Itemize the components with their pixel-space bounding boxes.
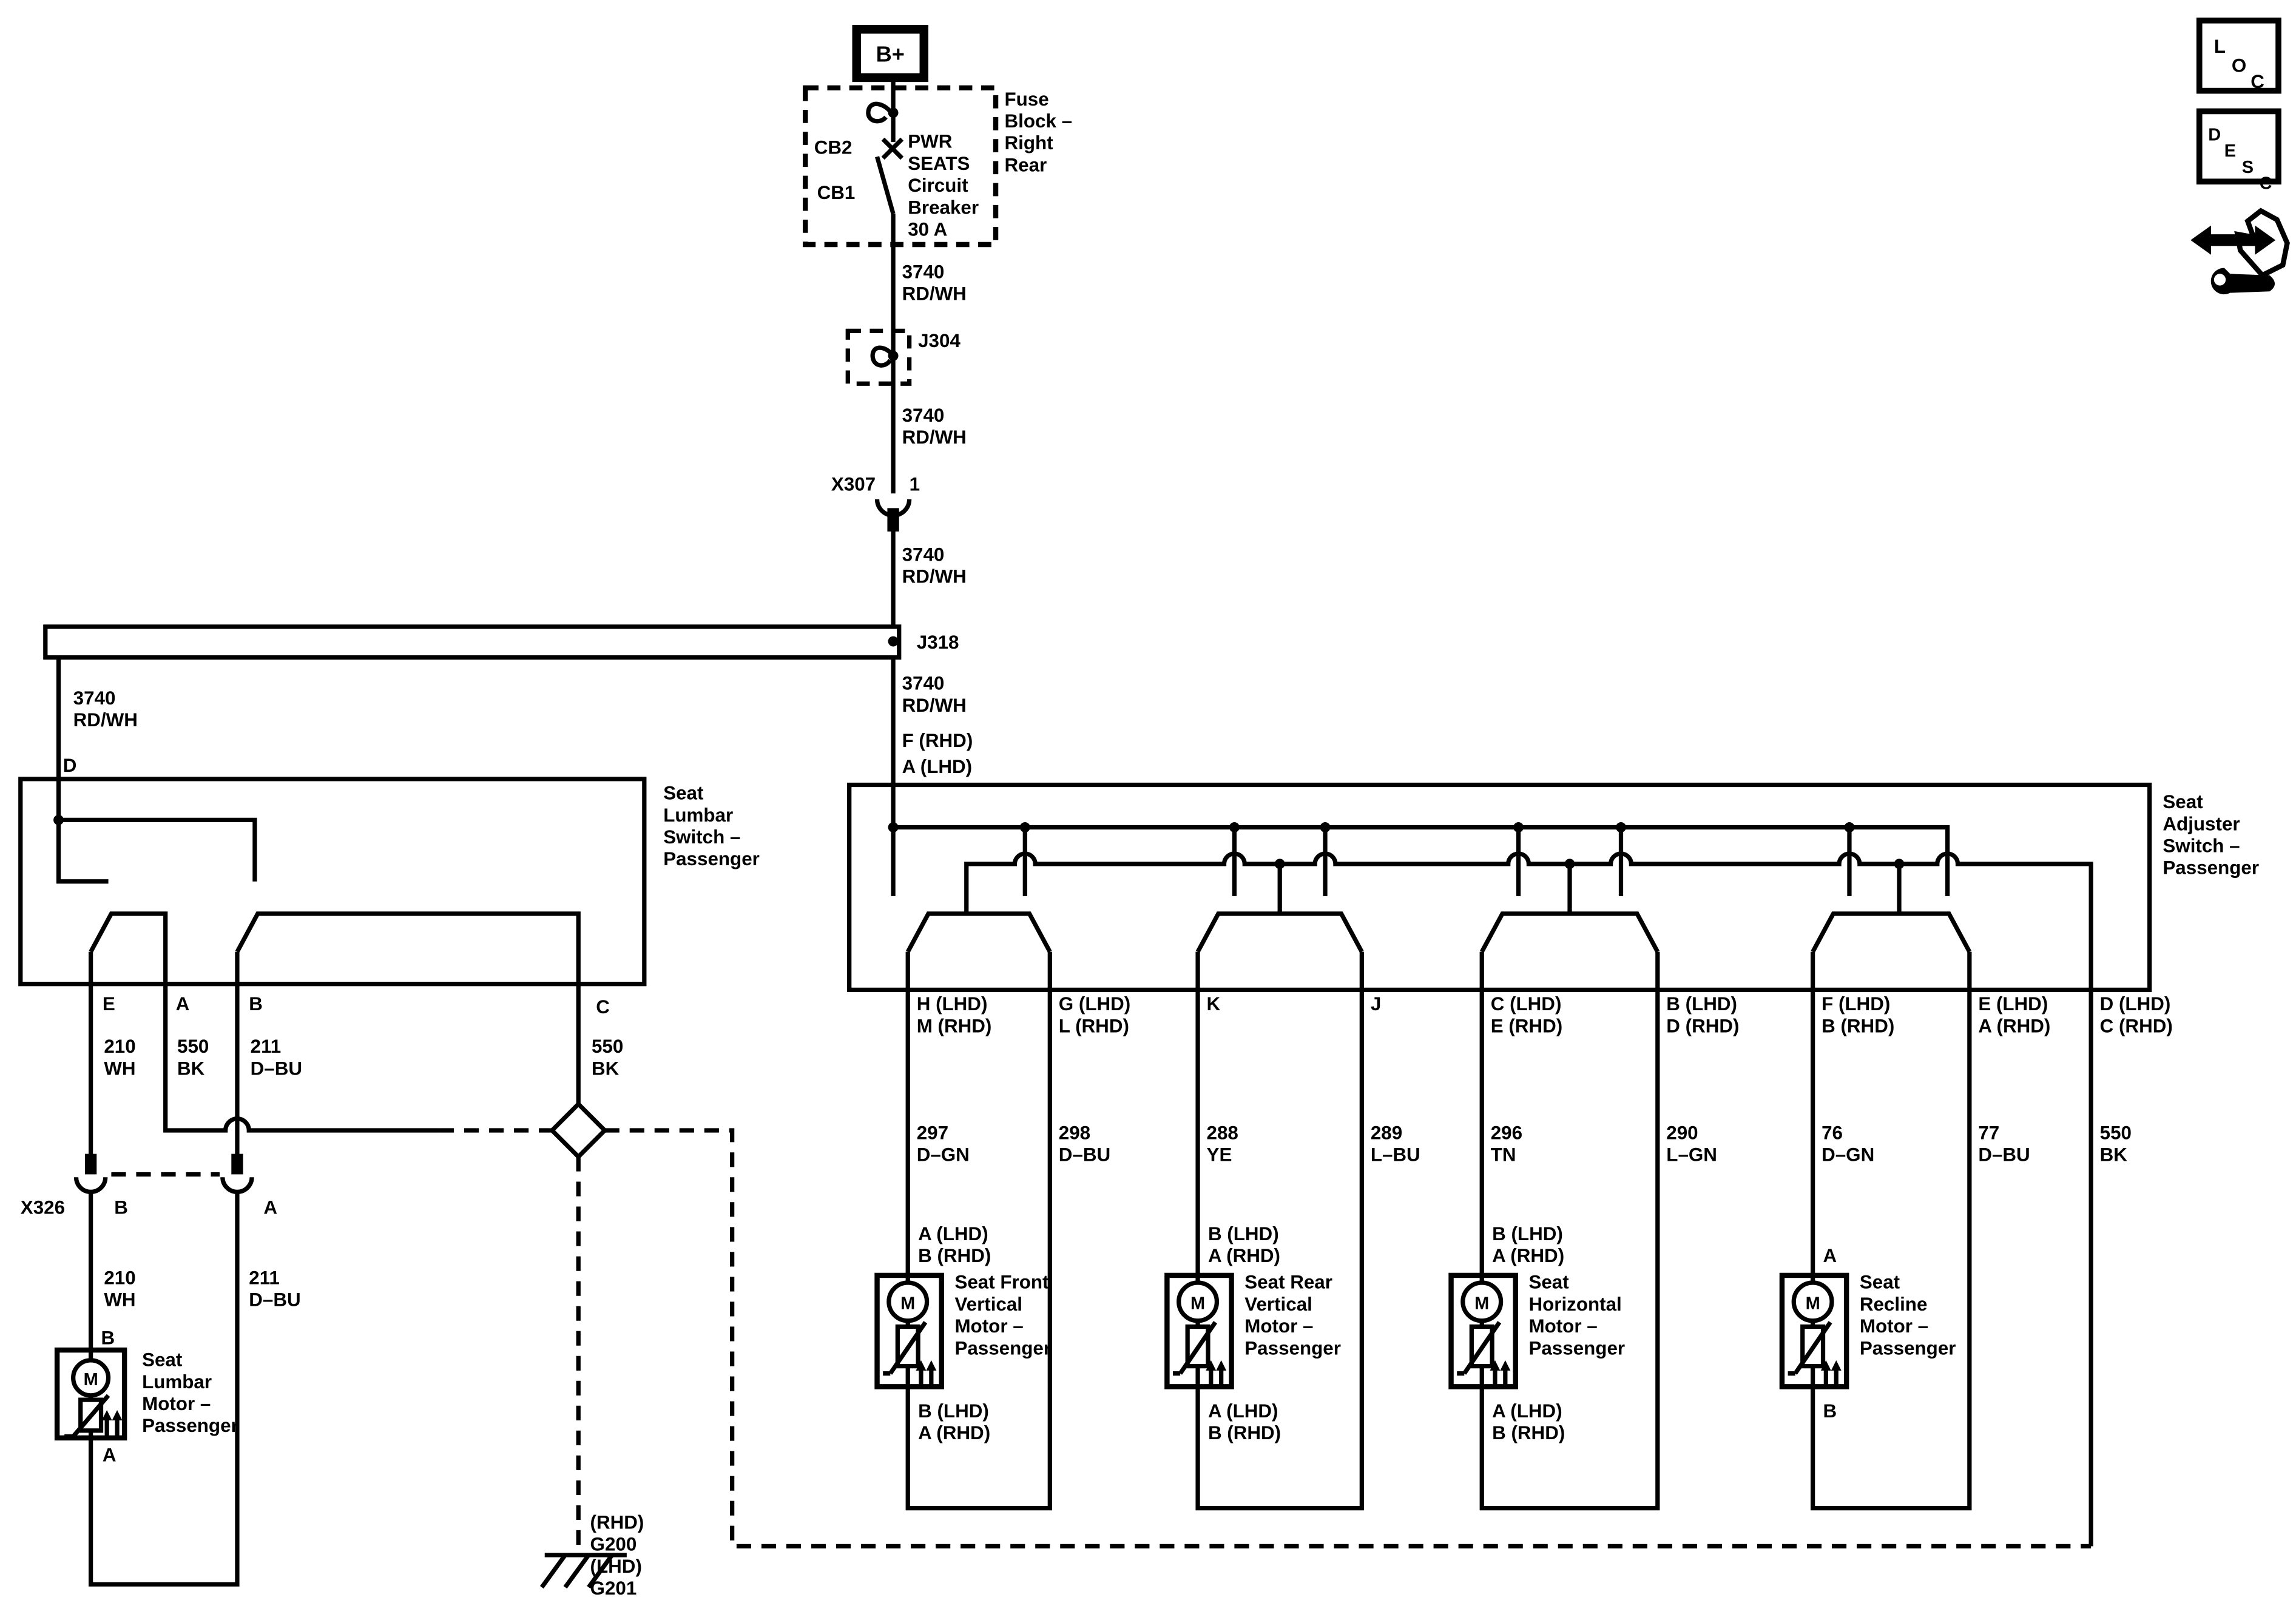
x326-pin-b-icon <box>85 1154 96 1175</box>
x326-socket-b-icon <box>76 1177 105 1192</box>
desc-s: S <box>2242 158 2254 177</box>
adjuster-motors: A (LHD)B (RHD) M Seat FrontVerticalMotor… <box>877 990 1970 1508</box>
adj-pin-6: B (LHD)D (RHD) <box>1666 993 1739 1036</box>
j318-busbar <box>46 627 899 658</box>
power-feed: B+ FuseBlock –RightRear CB2 CB1 PWRSEATS… <box>46 29 1072 785</box>
fuse-block-label: FuseBlock –RightRear <box>1005 89 1073 176</box>
motor1-arrows <box>921 1369 931 1385</box>
adj-switch-arm-2 <box>1198 914 1362 952</box>
adj-switch-arm-1 <box>908 914 1050 952</box>
cb1-label: CB1 <box>817 182 856 203</box>
bus-dot <box>1320 822 1331 832</box>
lumbar-switch: SeatLumbarSwitch –Passenger E A B C 210W… <box>21 779 760 1079</box>
pin-a-label: A <box>176 993 190 1014</box>
j318-dot <box>888 636 899 647</box>
adj-wire-1: 297D–GN <box>917 1122 970 1166</box>
lumbar-switch-arm-2 <box>237 914 578 984</box>
bus-dot <box>1565 859 1575 869</box>
adj-pin-stubs <box>908 952 1970 990</box>
motor4-bottom-pins: B <box>1823 1400 1837 1422</box>
j318-label: J318 <box>917 632 959 653</box>
adjuster-switch-box <box>849 785 2150 990</box>
desc-button[interactable]: D E S C <box>2200 111 2278 193</box>
motor2-bottom-pins: A (LHD)B (RHD) <box>1208 1400 1281 1443</box>
pin-f-rhd-label: F (RHD) <box>902 730 973 751</box>
bus-dot <box>1845 822 1855 832</box>
seat-wiring-diagram: B+ FuseBlock –RightRear CB2 CB1 PWRSEATS… <box>0 0 2296 1616</box>
wrench-notch <box>2214 274 2226 285</box>
adj-pin-2: G (LHD)L (RHD) <box>1059 993 1130 1036</box>
loc-c: C <box>2250 71 2264 92</box>
adj-ground-stubs <box>1280 864 1899 914</box>
wire-550a-label: 550BK <box>177 1036 209 1079</box>
loc-o: O <box>2232 55 2246 76</box>
lumbar-switch-label: SeatLumbarSwitch –Passenger <box>663 783 760 870</box>
motor3-label: SeatHorizontalMotor –Passenger <box>1528 1272 1625 1359</box>
lumbar-motor-arrowheads <box>102 1410 123 1420</box>
x326-socket-a-icon <box>223 1177 252 1192</box>
loc-l: L <box>2214 36 2226 57</box>
bus-dot <box>888 822 899 832</box>
breaker-blade <box>877 157 894 214</box>
lumbar-stub-1 <box>59 820 109 881</box>
ground-label: (RHD)G200(LHD)G201 <box>590 1511 644 1599</box>
pin-b-label: B <box>249 993 263 1014</box>
adj-pin-5: C (LHD)E (RHD) <box>1491 993 1562 1036</box>
desc-d: D <box>2208 126 2221 145</box>
adj-switch-arm-4 <box>1813 914 1970 952</box>
motor4-arrows <box>1826 1369 1836 1385</box>
adjuster-switch-label: SeatAdjusterSwitch –Passenger <box>2163 791 2259 879</box>
j304-label: J304 <box>918 330 961 351</box>
motor2-top-pins: B (LHD)A (RHD) <box>1208 1223 1280 1266</box>
desc-box[interactable] <box>2200 111 2278 181</box>
motor1-bottom-pins: B (LHD)A (RHD) <box>918 1400 990 1443</box>
lumbar-switch-box <box>21 779 644 984</box>
wire-3740-label-3: 3740RD/WH <box>902 544 967 587</box>
motor1-m: M <box>900 1294 915 1313</box>
x307-pin-icon <box>887 508 899 532</box>
motor2-label: Seat RearVerticalMotor –Passenger <box>1244 1272 1341 1359</box>
motor3-top-pins: B (LHD)A (RHD) <box>1492 1223 1564 1266</box>
motor4-label: SeatReclineMotor –Passenger <box>1860 1272 1956 1359</box>
lumbar-stub-2 <box>59 820 255 881</box>
corner-icons: L O C D E S C <box>2190 21 2287 294</box>
wire-550-horizontal <box>166 984 439 1130</box>
bus-dot <box>1513 822 1524 832</box>
x326-a-label: A <box>263 1197 277 1218</box>
wiring-diagram-page: B+ FuseBlock –RightRear CB2 CB1 PWRSEATS… <box>0 0 2296 1616</box>
battery-label: B+ <box>876 41 905 66</box>
desc-e: E <box>2224 141 2236 161</box>
motor3-bottom-pins: A (LHD)B (RHD) <box>1492 1400 1565 1443</box>
wire-211-label-2: 211D–BU <box>249 1267 300 1310</box>
adj-wire-9: 550BK <box>2100 1122 2132 1166</box>
bus-dot <box>1275 859 1285 869</box>
bus-dot <box>1020 822 1030 832</box>
adj-wire-7: 76D–GN <box>1822 1122 1874 1166</box>
junction-dot <box>888 107 899 118</box>
pin-c-label: C <box>596 996 610 1018</box>
j304-dot <box>888 351 899 361</box>
motor4-m: M <box>1806 1294 1820 1313</box>
motor1-top-pins: A (LHD)B (RHD) <box>918 1223 991 1266</box>
wire-210-label: 210WH <box>104 1036 135 1079</box>
wire-3740-label-left: 3740RD/WH <box>73 687 138 731</box>
pin-a-lhd-label: A (LHD) <box>902 756 973 777</box>
cb2-label: CB2 <box>814 137 853 158</box>
adj-wire-4: 289L–BU <box>1371 1122 1420 1166</box>
lumbar-motor-pin-b: B <box>101 1327 115 1348</box>
motor3-arrows <box>1495 1369 1505 1385</box>
pin-e-label: E <box>103 993 115 1014</box>
breaker-label: PWRSEATSCircuitBreaker30 A <box>908 131 979 240</box>
adj-wire-2: 298D–BU <box>1059 1122 1110 1166</box>
adj-pin-7: F (LHD)B (RHD) <box>1822 993 1894 1036</box>
wire-210-label-2: 210WH <box>104 1267 135 1310</box>
x326-pin-a-icon <box>231 1154 243 1175</box>
motor2-m: M <box>1190 1294 1205 1313</box>
wire-3740-label-1: 3740RD/WH <box>902 262 967 305</box>
adj-wire-5: 296TN <box>1491 1122 1522 1166</box>
desc-c: C <box>2260 174 2272 193</box>
adj-pin-1: H (LHD)M (RHD) <box>917 993 992 1036</box>
wire-211-label: 211D–BU <box>251 1036 302 1079</box>
lumbar-motor-arrows <box>107 1419 117 1436</box>
motor3-m: M <box>1474 1294 1489 1313</box>
j304-splice-box <box>848 331 909 383</box>
lumbar-motor-pin-a: A <box>103 1444 116 1465</box>
motor4-top-pins: A <box>1823 1245 1837 1266</box>
adj-pin-4: J <box>1371 993 1381 1014</box>
adj-pin-8: E (LHD)A (RHD) <box>1978 993 2050 1036</box>
lumbar-switch-arm-1 <box>91 914 166 984</box>
motor1-label: Seat FrontVerticalMotor –Passenger <box>954 1272 1051 1359</box>
bus-dot <box>1229 822 1240 832</box>
diagram-link-button[interactable] <box>2190 211 2287 295</box>
lumbar-motor-label: SeatLumbarMotor –Passenger <box>142 1349 238 1437</box>
bus-dot <box>1616 822 1626 832</box>
loc-button[interactable]: L O C <box>2200 21 2278 92</box>
x326-b-label: B <box>114 1197 128 1218</box>
adj-wire-3: 288YE <box>1207 1122 1238 1166</box>
x307-label: X307 <box>831 473 876 495</box>
bus-dot <box>1894 859 1905 869</box>
wire-550c-label: 550BK <box>592 1036 623 1079</box>
adj-switch-arm-3 <box>1482 914 1658 952</box>
adj-pin-3: K <box>1207 993 1221 1014</box>
lumbar-motor-m: M <box>84 1370 98 1389</box>
adj-wire-6: 290L–GN <box>1666 1122 1717 1166</box>
x326-label: X326 <box>21 1197 65 1218</box>
wire-3740-label-2: 3740RD/WH <box>902 405 967 448</box>
x307-pin-label: 1 <box>910 473 920 495</box>
adj-wire-8: 77D–BU <box>1978 1122 2030 1166</box>
wire-3740-label-4: 3740RD/WH <box>902 673 967 716</box>
pin-d-label: D <box>63 755 77 776</box>
adj-pin-9: D (LHD)C (RHD) <box>2100 993 2173 1036</box>
splice-diamond <box>552 1104 605 1157</box>
motor2-arrows <box>1211 1369 1221 1385</box>
